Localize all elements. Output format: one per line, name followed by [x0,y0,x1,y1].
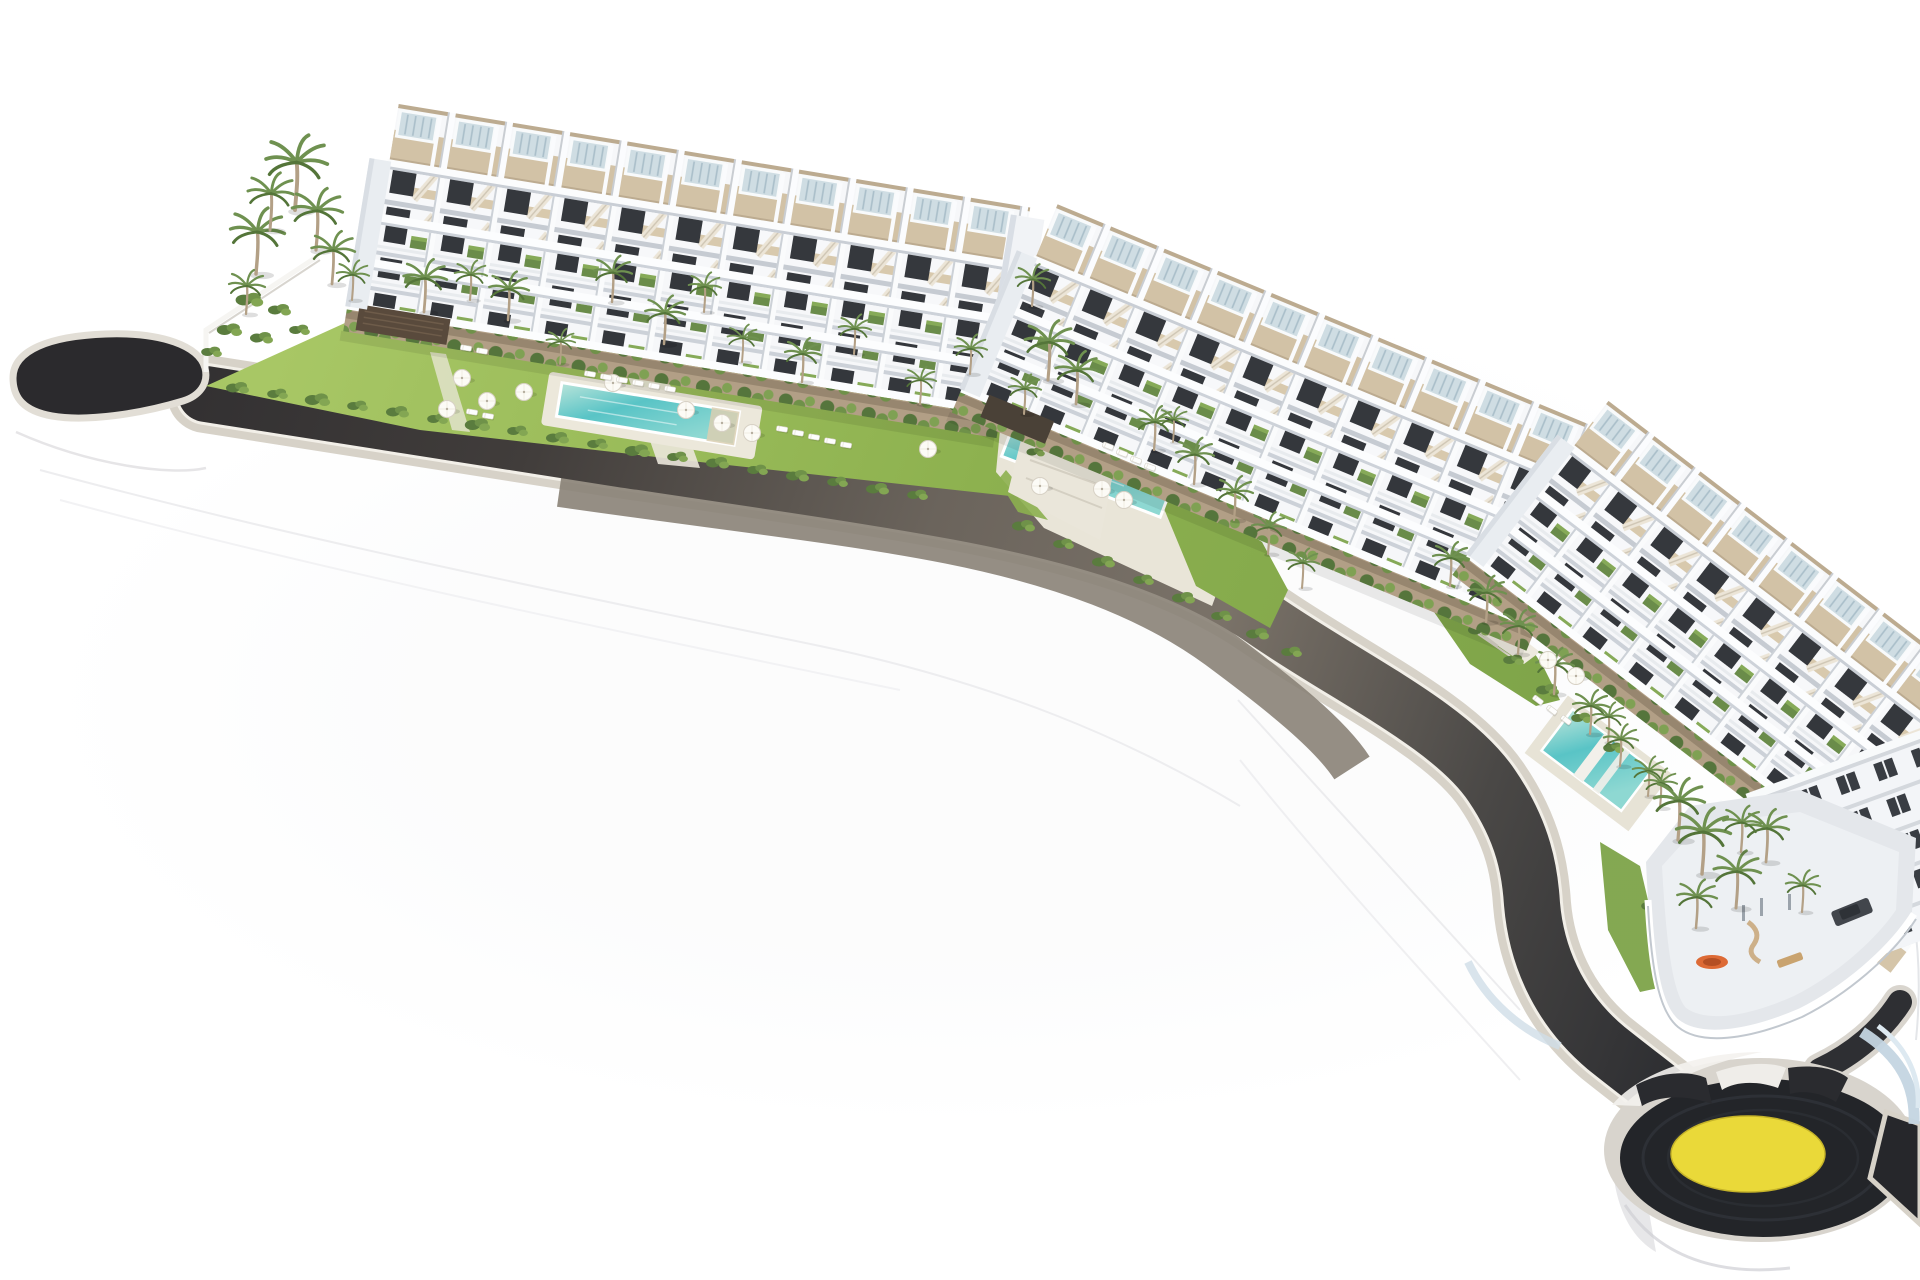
aerial-render [0,0,1920,1280]
road-turning-bulb [13,334,206,418]
architectural-render-canvas [0,0,1920,1280]
roundabout-yellow-disc [1671,1116,1825,1192]
